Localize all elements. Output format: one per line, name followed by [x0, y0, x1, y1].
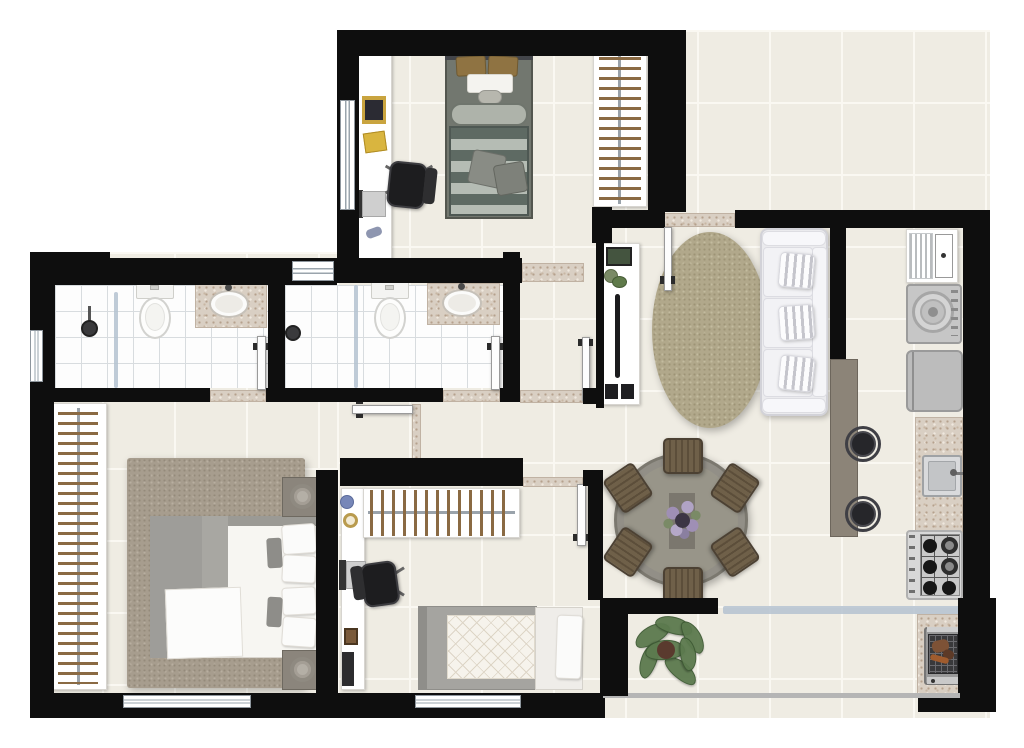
- master-bed-cushion-1: [266, 538, 283, 569]
- kitchen-sink-basin: [928, 461, 956, 491]
- bathroom-1-handle-a: [253, 343, 257, 350]
- grill-handle-bar: [927, 627, 959, 632]
- shower-2-head: [285, 325, 301, 341]
- outside-top-left: [0, 0, 337, 252]
- shower-1-head: [81, 320, 98, 337]
- wall-bottom-right-strip: [918, 698, 996, 712]
- balcony-glass: [723, 606, 962, 614]
- sink-1-inner: [215, 295, 243, 313]
- window-left-wall: [30, 330, 43, 382]
- burner-4: [941, 558, 958, 575]
- window-bedroom-bottom: [415, 695, 521, 708]
- wall-top: [337, 30, 686, 56]
- tv-picture-plant: [608, 249, 630, 264]
- window-master: [123, 695, 251, 708]
- bed-top-cushion-b: [493, 161, 529, 197]
- toilet-1-bowl-inner: [145, 303, 165, 331]
- tv-speaker-2: [621, 384, 634, 399]
- desk-picture: [344, 628, 358, 645]
- wall-bath-bottom-b: [266, 388, 443, 402]
- toilet-2-bowl-inner: [380, 303, 400, 331]
- burner-2: [941, 537, 958, 554]
- sink-2-faucet: [458, 283, 465, 290]
- outside-left: [0, 0, 30, 748]
- toilet-1-button: [150, 285, 159, 290]
- stove-knobs: [909, 535, 915, 595]
- balcony-edge-line: [603, 693, 960, 698]
- suite-door-handle-b: [356, 414, 363, 418]
- wall-living-top: [735, 210, 965, 228]
- wall-bedroom-bottom-top: [340, 458, 523, 486]
- bedroom-bottom-wardrobe-hangers: [370, 490, 513, 536]
- master-bed-pillow-4: [281, 616, 317, 648]
- toilet-2-button: [385, 285, 394, 290]
- shower-2-glass: [354, 285, 358, 388]
- flower-center: [675, 513, 690, 528]
- master-bed-pillow-3: [281, 586, 316, 616]
- laptop-top-base: [362, 191, 386, 217]
- sink-2-inner: [448, 294, 476, 312]
- wall-bedroom-bottom-stub: [583, 470, 603, 486]
- office-chair-top: [386, 160, 429, 210]
- bedroom-bottom-handle-a: [573, 534, 577, 541]
- wall-bedroom-bottom-right: [588, 486, 603, 600]
- stool-1-seat: [850, 431, 876, 457]
- washer-drum-core: [928, 307, 938, 317]
- wall-bath-bottom-a: [30, 388, 210, 402]
- bedroom-bottom-door: [577, 484, 586, 546]
- desk-frame-inner: [365, 100, 383, 120]
- bedroom-top-wardrobe-hangers: [599, 57, 641, 203]
- kitchen-faucet-dot: [950, 469, 957, 476]
- corridor-threshold: [520, 390, 583, 403]
- burner-6: [942, 581, 956, 595]
- wall-bottom-right-corner: [958, 598, 996, 712]
- bed-bottom-duvet: [447, 615, 535, 679]
- master-bed-folded-duvet: [165, 587, 243, 660]
- office-chair-bottom: [359, 560, 401, 609]
- desk-shelf: [342, 652, 354, 686]
- sofa-pillow-2: [778, 304, 815, 341]
- sofa-pillow-1: [778, 252, 816, 290]
- stool-2-seat: [850, 501, 876, 527]
- sofa-back: [812, 247, 827, 397]
- corridor-handle-a: [578, 339, 582, 346]
- dining-chair-top: [663, 438, 703, 474]
- desk-book: [363, 131, 388, 154]
- desk-ball: [340, 495, 354, 509]
- burner-5: [923, 581, 937, 595]
- sofa-arm-bottom: [762, 398, 826, 413]
- wall-bath-right: [503, 252, 520, 402]
- burner-1: [923, 539, 937, 553]
- shower-1-glass: [114, 292, 118, 388]
- wall-bedroom-top-right: [648, 30, 686, 212]
- outside-bottom: [0, 718, 1024, 748]
- bed-top-neck-cushion: [478, 90, 502, 104]
- wall-bath-divider: [268, 285, 285, 388]
- bed-bottom-ruffle: [418, 606, 427, 690]
- wall-kitchen-divider: [830, 222, 846, 359]
- bathroom-2-threshold: [443, 390, 500, 402]
- window-bathroom: [292, 261, 334, 281]
- bathroom-2-handle-a: [487, 343, 491, 350]
- wall-corridor: [596, 226, 604, 408]
- bed-bottom-pillow: [555, 615, 583, 680]
- bathroom-1-door: [257, 336, 266, 390]
- bed-top-roll: [450, 103, 528, 126]
- suite-door: [352, 405, 413, 414]
- master-bed-cushion-2: [266, 597, 283, 628]
- bathroom-2-door: [491, 336, 500, 390]
- fridge-door-line: [912, 352, 914, 410]
- bedroom-top-threshold: [522, 263, 584, 282]
- laundry-drain: [941, 253, 946, 258]
- entry-handle-b: [671, 276, 675, 284]
- wall-master-divider: [316, 470, 338, 693]
- master-wardrobe-hangers: [58, 412, 98, 684]
- window-bedroom-top-left: [340, 100, 355, 210]
- wall-clock: [343, 513, 358, 528]
- wall-left-lower: [30, 398, 54, 695]
- nightstand-lamp-2: [290, 657, 315, 682]
- entry-handle-a: [660, 276, 664, 284]
- laundry-washboard: [909, 233, 933, 279]
- tv-rack: [602, 243, 640, 405]
- sofa-pillow-3: [777, 354, 815, 392]
- sofa-arm-top: [762, 231, 826, 246]
- corridor-handle-b: [589, 339, 593, 346]
- fridge: [906, 350, 963, 412]
- nightstand-lamp-1: [290, 484, 315, 509]
- master-bed-pillow-1: [281, 523, 317, 555]
- grill-base-dot: [931, 679, 935, 683]
- bedroom-bottom-threshold: [523, 477, 583, 487]
- master-bed-pillow-2: [281, 554, 316, 584]
- sink-1-faucet: [225, 284, 232, 291]
- laptop-bottom-screen: [339, 560, 346, 590]
- burner-3: [923, 560, 937, 574]
- wall-balcony: [600, 598, 718, 614]
- plant-pot: [657, 641, 675, 659]
- floor-plan-canvas: Top-down architectural floor plan of a 3…: [0, 0, 1024, 748]
- tv-shelf-edge: [615, 294, 620, 378]
- wall-bedroom-top-bottom: [337, 258, 522, 283]
- tv-plant-pot-2: [612, 276, 627, 288]
- bathroom-1-threshold: [210, 390, 266, 402]
- entry-threshold: [663, 213, 735, 227]
- tv-speaker-1: [605, 384, 618, 399]
- washer-panel: [951, 290, 958, 336]
